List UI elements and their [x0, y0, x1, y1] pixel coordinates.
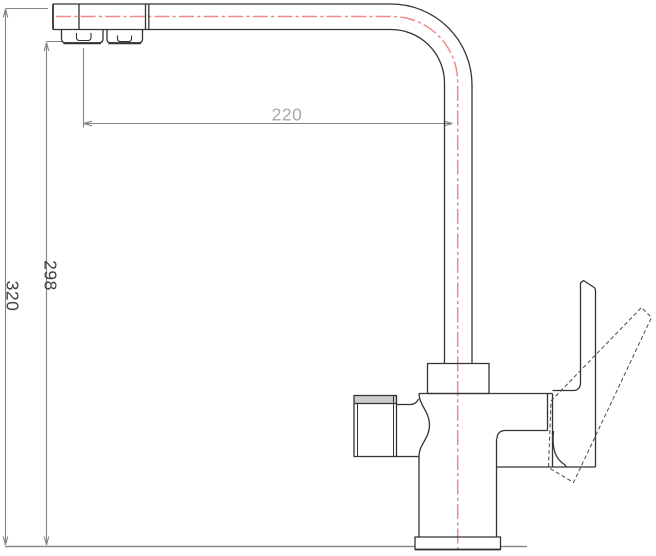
dimension-spout-reach: [84, 48, 453, 128]
spout-tube-outer-edge: [53, 4, 472, 364]
spout-tube-inner-edge: [53, 30, 445, 364]
dimension-annotations: [3, 9, 452, 546]
centerline-group: [56, 17, 458, 553]
aerator-filtered: [62, 30, 104, 44]
dimension-outlet-height: [44, 42, 63, 546]
filter-outlet-body: [354, 396, 397, 457]
faucet-body: [419, 394, 596, 538]
lever-handle-solid: [553, 281, 596, 468]
aerator-2-nozzle: [118, 36, 132, 42]
faucet-outline: [53, 4, 652, 550]
body-left-edge: [419, 394, 430, 538]
faucet-technical-drawing: 220 298 320: [0, 0, 656, 556]
handle-base-wedge-curve: [553, 431, 566, 467]
filter-outlet-cap-band: [354, 396, 397, 404]
body-port-top-edge: [497, 431, 548, 440]
drawing-canvas: 220 298 320: [0, 0, 656, 556]
handle-outline: [575, 281, 596, 468]
lever-handle-dashed-alt-position: [549, 308, 652, 483]
spout-head-joint-ring: [146, 4, 149, 30]
side-filter-outlet: [354, 396, 419, 457]
filter-outlet-neck-top: [397, 399, 419, 405]
dim-label-298: 298: [41, 260, 61, 291]
dim-label-220: 220: [272, 105, 303, 125]
dim-label-320: 320: [3, 281, 23, 312]
aerator-1-nozzle: [77, 33, 92, 41]
centerline: [56, 17, 458, 553]
aerator-main: [107, 30, 143, 44]
